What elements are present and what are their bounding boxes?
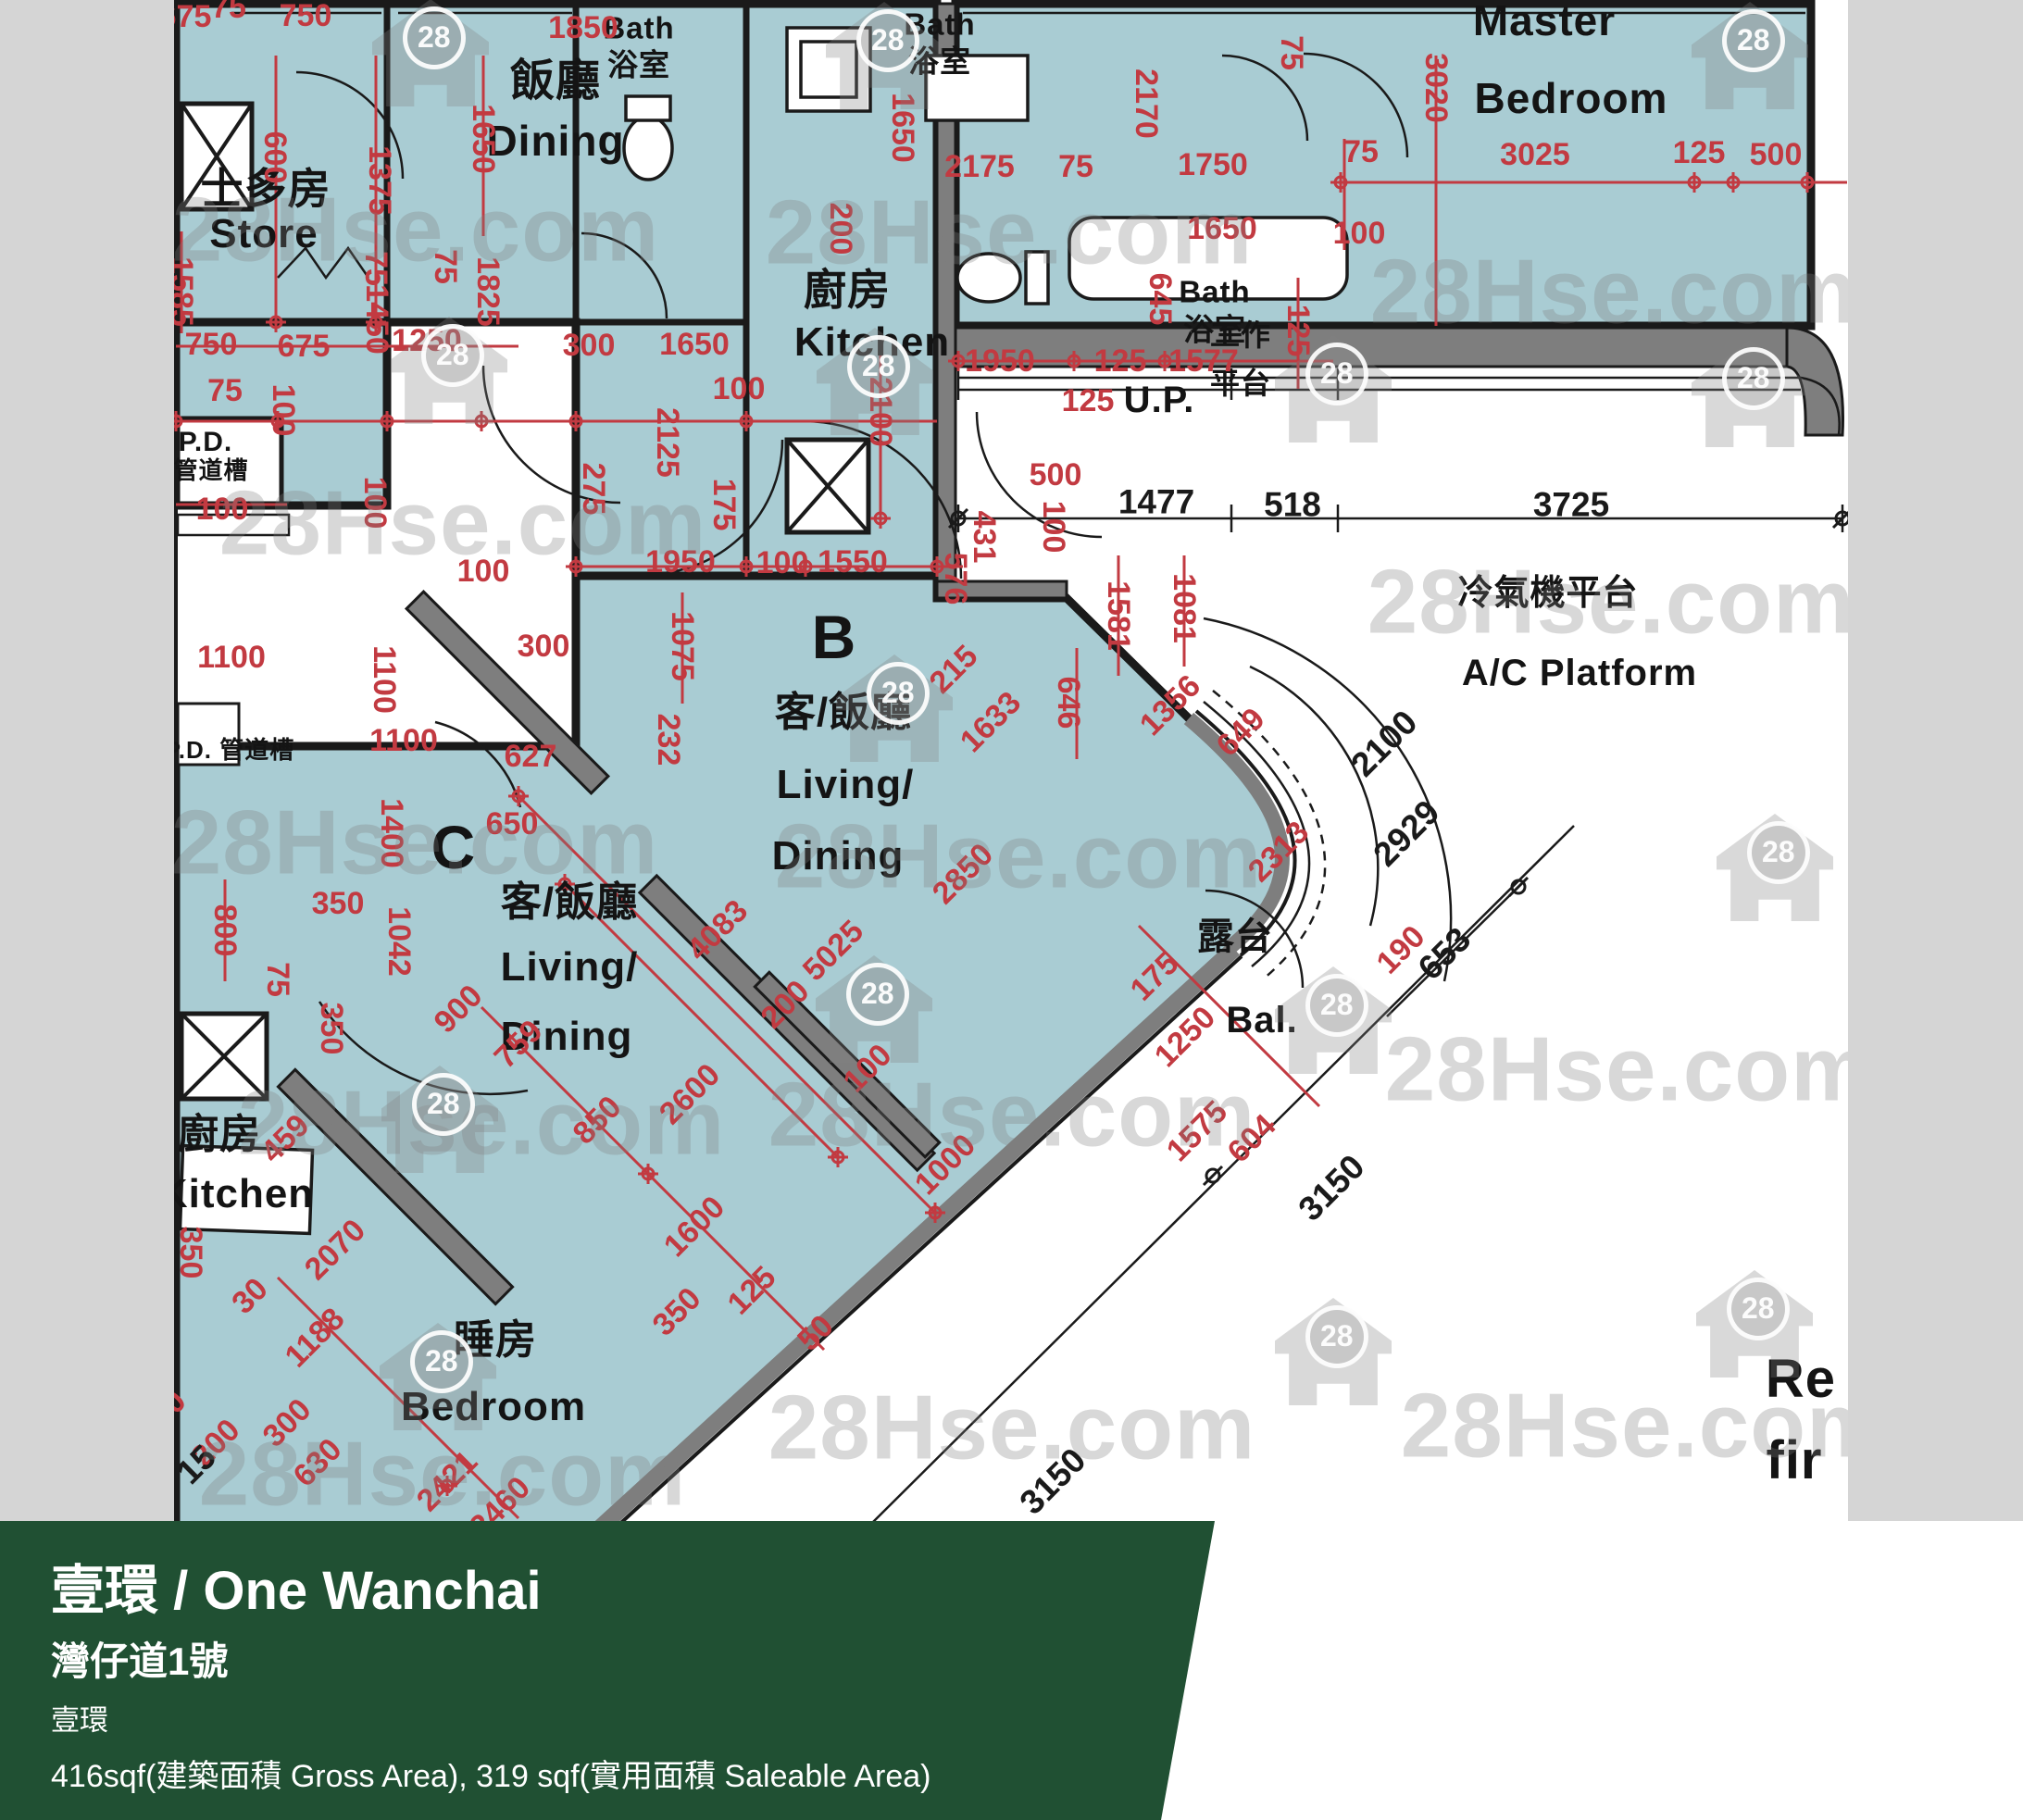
footer-bar: 壹環 / One Wanchai 灣仔道1號 壹環 416sqf(建築面積 Gr…: [0, 1521, 2023, 1820]
left-margin-band: [0, 0, 174, 1521]
estate-title: 壹環 / One Wanchai: [51, 1547, 542, 1625]
right-margin-band: [1848, 0, 2023, 1521]
floorplan-page: 飯廳Dining士多房StoreBath浴室Bath浴室Bath浴室廚房Kitc…: [0, 0, 2023, 1820]
room-fills: [176, 4, 1811, 1529]
estate-name: 壹環: [51, 1697, 108, 1739]
footer-green-panel: 壹環 / One Wanchai 灣仔道1號 壹環 416sqf(建築面積 Gr…: [0, 1521, 1222, 1820]
estate-address: 灣仔道1號: [51, 1630, 228, 1687]
area-info: 416sqf(建築面積 Gross Area), 319 sqf(實用面積 Sa…: [51, 1751, 930, 1796]
